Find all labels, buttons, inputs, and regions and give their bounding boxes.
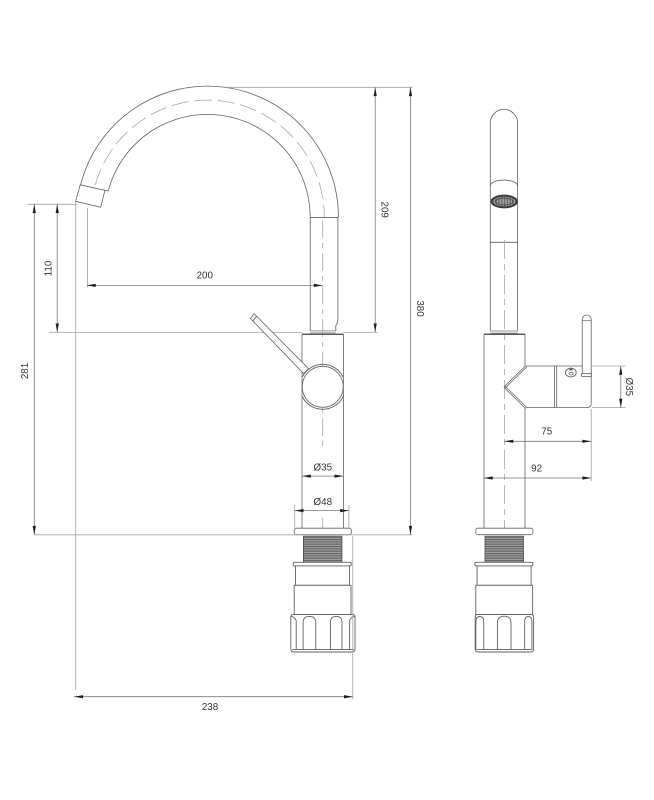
svg-text:75: 75: [541, 427, 552, 438]
svg-text:92: 92: [531, 463, 542, 474]
svg-text:110: 110: [44, 260, 55, 276]
svg-text:380: 380: [414, 300, 425, 317]
svg-text:281: 281: [20, 363, 31, 379]
svg-text:Ø48: Ø48: [314, 497, 333, 508]
svg-text:Ø35: Ø35: [314, 462, 333, 473]
svg-text:209: 209: [378, 202, 389, 218]
svg-text:238: 238: [202, 702, 219, 713]
svg-text:Ø35: Ø35: [623, 378, 634, 397]
svg-text:200: 200: [197, 271, 214, 282]
